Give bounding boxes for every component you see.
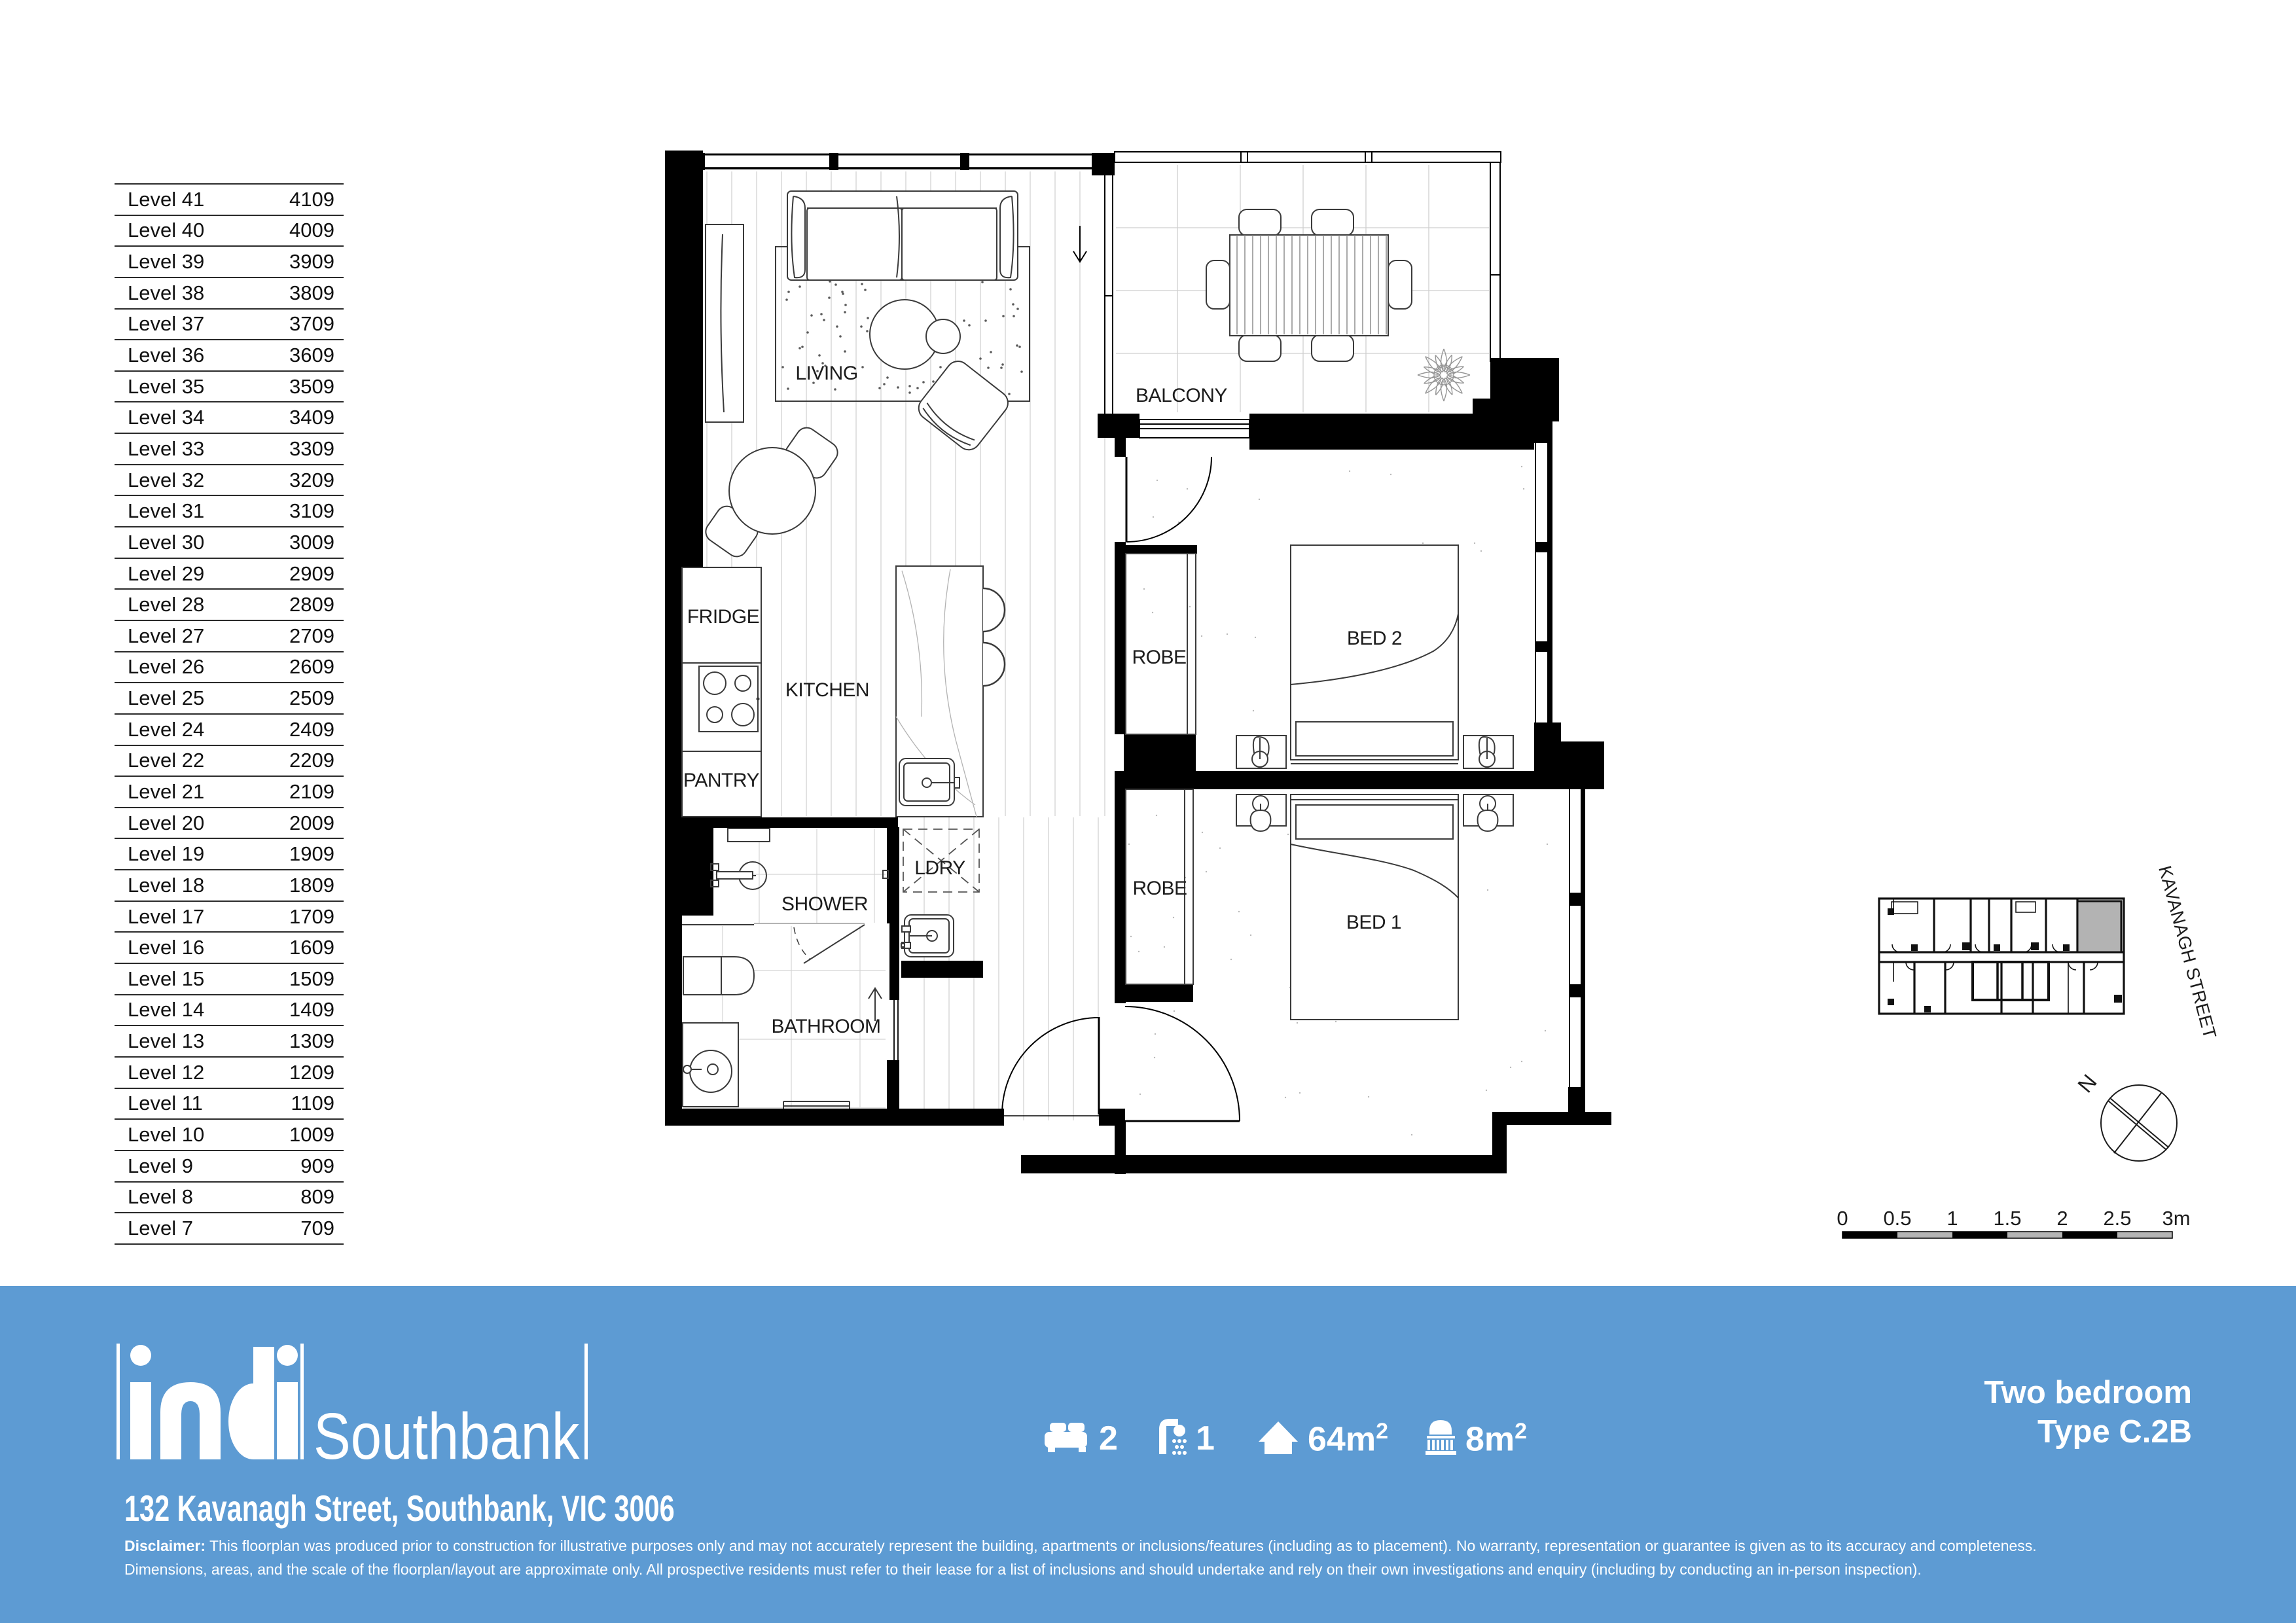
svg-text:PANTRY: PANTRY: [683, 770, 759, 791]
svg-text:2: 2: [2056, 1207, 2068, 1230]
svg-text:1: 1: [1946, 1207, 1958, 1230]
svg-text:SHOWER: SHOWER: [781, 893, 868, 915]
svg-text:N: N: [2073, 1069, 2102, 1097]
svg-text:LDRY: LDRY: [914, 857, 965, 879]
svg-text:BED 2: BED 2: [1347, 628, 1402, 649]
svg-text:ROBE: ROBE: [1132, 647, 1186, 668]
svg-text:KITCHEN: KITCHEN: [785, 679, 869, 701]
svg-text:Southbank: Southbank: [314, 1399, 580, 1472]
svg-text:1.5: 1.5: [1993, 1207, 2021, 1230]
svg-text:BALCONY: BALCONY: [1136, 385, 1227, 406]
svg-text:FRIDGE: FRIDGE: [687, 606, 759, 628]
svg-text:ROBE: ROBE: [1132, 878, 1187, 899]
svg-text:BATHROOM: BATHROOM: [771, 1016, 880, 1037]
svg-text:KAVANAGH STREET: KAVANAGH STREET: [2155, 864, 2220, 1041]
svg-text:2.5: 2.5: [2103, 1207, 2131, 1230]
svg-text:0.5: 0.5: [1883, 1207, 1911, 1230]
svg-text:LIVING: LIVING: [795, 363, 857, 384]
svg-text:BED 1: BED 1: [1346, 912, 1401, 933]
svg-text:0: 0: [1837, 1207, 1848, 1230]
svg-text:3m: 3m: [2162, 1207, 2190, 1230]
